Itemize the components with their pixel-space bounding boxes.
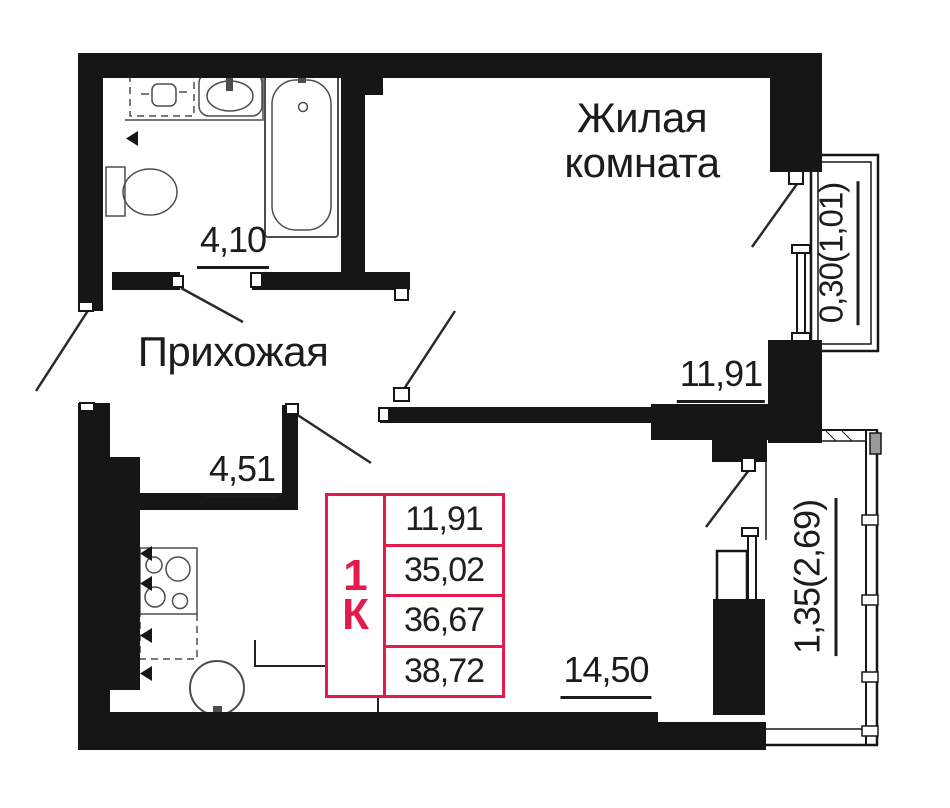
wall-left-lower	[78, 403, 110, 750]
kitchen-sink-icon	[190, 661, 244, 719]
kitchen-living-area-value: 14,50	[560, 649, 651, 699]
wall-right-lower	[713, 599, 765, 715]
unit-type-cell: 1 К	[328, 496, 386, 695]
living-room-door-swing	[402, 311, 455, 392]
vent-triangle-icon	[126, 131, 138, 146]
vent-triangle-icon	[140, 628, 152, 643]
wall-bottom-right	[658, 722, 766, 750]
wall-right-top	[770, 78, 822, 172]
bathtub-icon	[265, 68, 338, 237]
wall-top	[78, 53, 822, 78]
wall-bath-right	[341, 78, 365, 278]
unit-type-letter: К	[342, 596, 369, 635]
table-row: 35,02	[386, 544, 502, 595]
table-row: 11,91	[386, 496, 502, 544]
vent-triangle-icon	[140, 666, 152, 681]
floor-plan: Жилая комната Прихожая 4,10 4,51 11,91 1…	[0, 0, 950, 808]
balcony-large-area-value: 1,35(2,69)	[787, 498, 838, 656]
hallway-area-value: 4,51	[206, 448, 278, 498]
wall-right-mid	[768, 340, 822, 443]
wall-shaft	[110, 457, 140, 690]
wall-left-upper	[78, 78, 103, 311]
washing-machine-icon	[130, 74, 194, 116]
table-row: 38,72	[386, 645, 502, 696]
wall-bath-stub	[112, 272, 180, 290]
hallway-door-swing	[293, 412, 371, 463]
wall-bottom-left	[78, 712, 658, 750]
area-values-column: 11,91 35,02 36,67 38,72	[386, 496, 502, 695]
balcony-small-door-swing	[752, 184, 797, 247]
bathroom-door-swing	[181, 288, 243, 322]
wall-bath-bottom	[252, 272, 410, 290]
apartment-info-table: 1 К 11,91 35,02 36,67 38,72	[325, 493, 505, 698]
entry-door-swing	[36, 309, 89, 391]
balcony-small-area-value: 0,30(1,01)	[813, 181, 860, 325]
bathroom-sink-icon	[199, 73, 262, 116]
bathroom-area-value: 4,10	[197, 219, 269, 269]
table-row: 36,67	[386, 594, 502, 645]
living-room-area-value: 11,91	[677, 353, 765, 403]
bathroom-fixtures	[106, 68, 338, 237]
wall-living-bottom-thin	[380, 407, 651, 423]
balcony-door-window	[792, 245, 810, 341]
hallway-label: Прихожая	[103, 330, 363, 375]
wall-bath-notch	[341, 78, 383, 95]
balcony-large-door-swing	[706, 470, 749, 527]
toilet-icon	[106, 167, 177, 216]
wall-right-step	[712, 440, 767, 462]
living-room-label: Жилая комната	[512, 96, 772, 186]
